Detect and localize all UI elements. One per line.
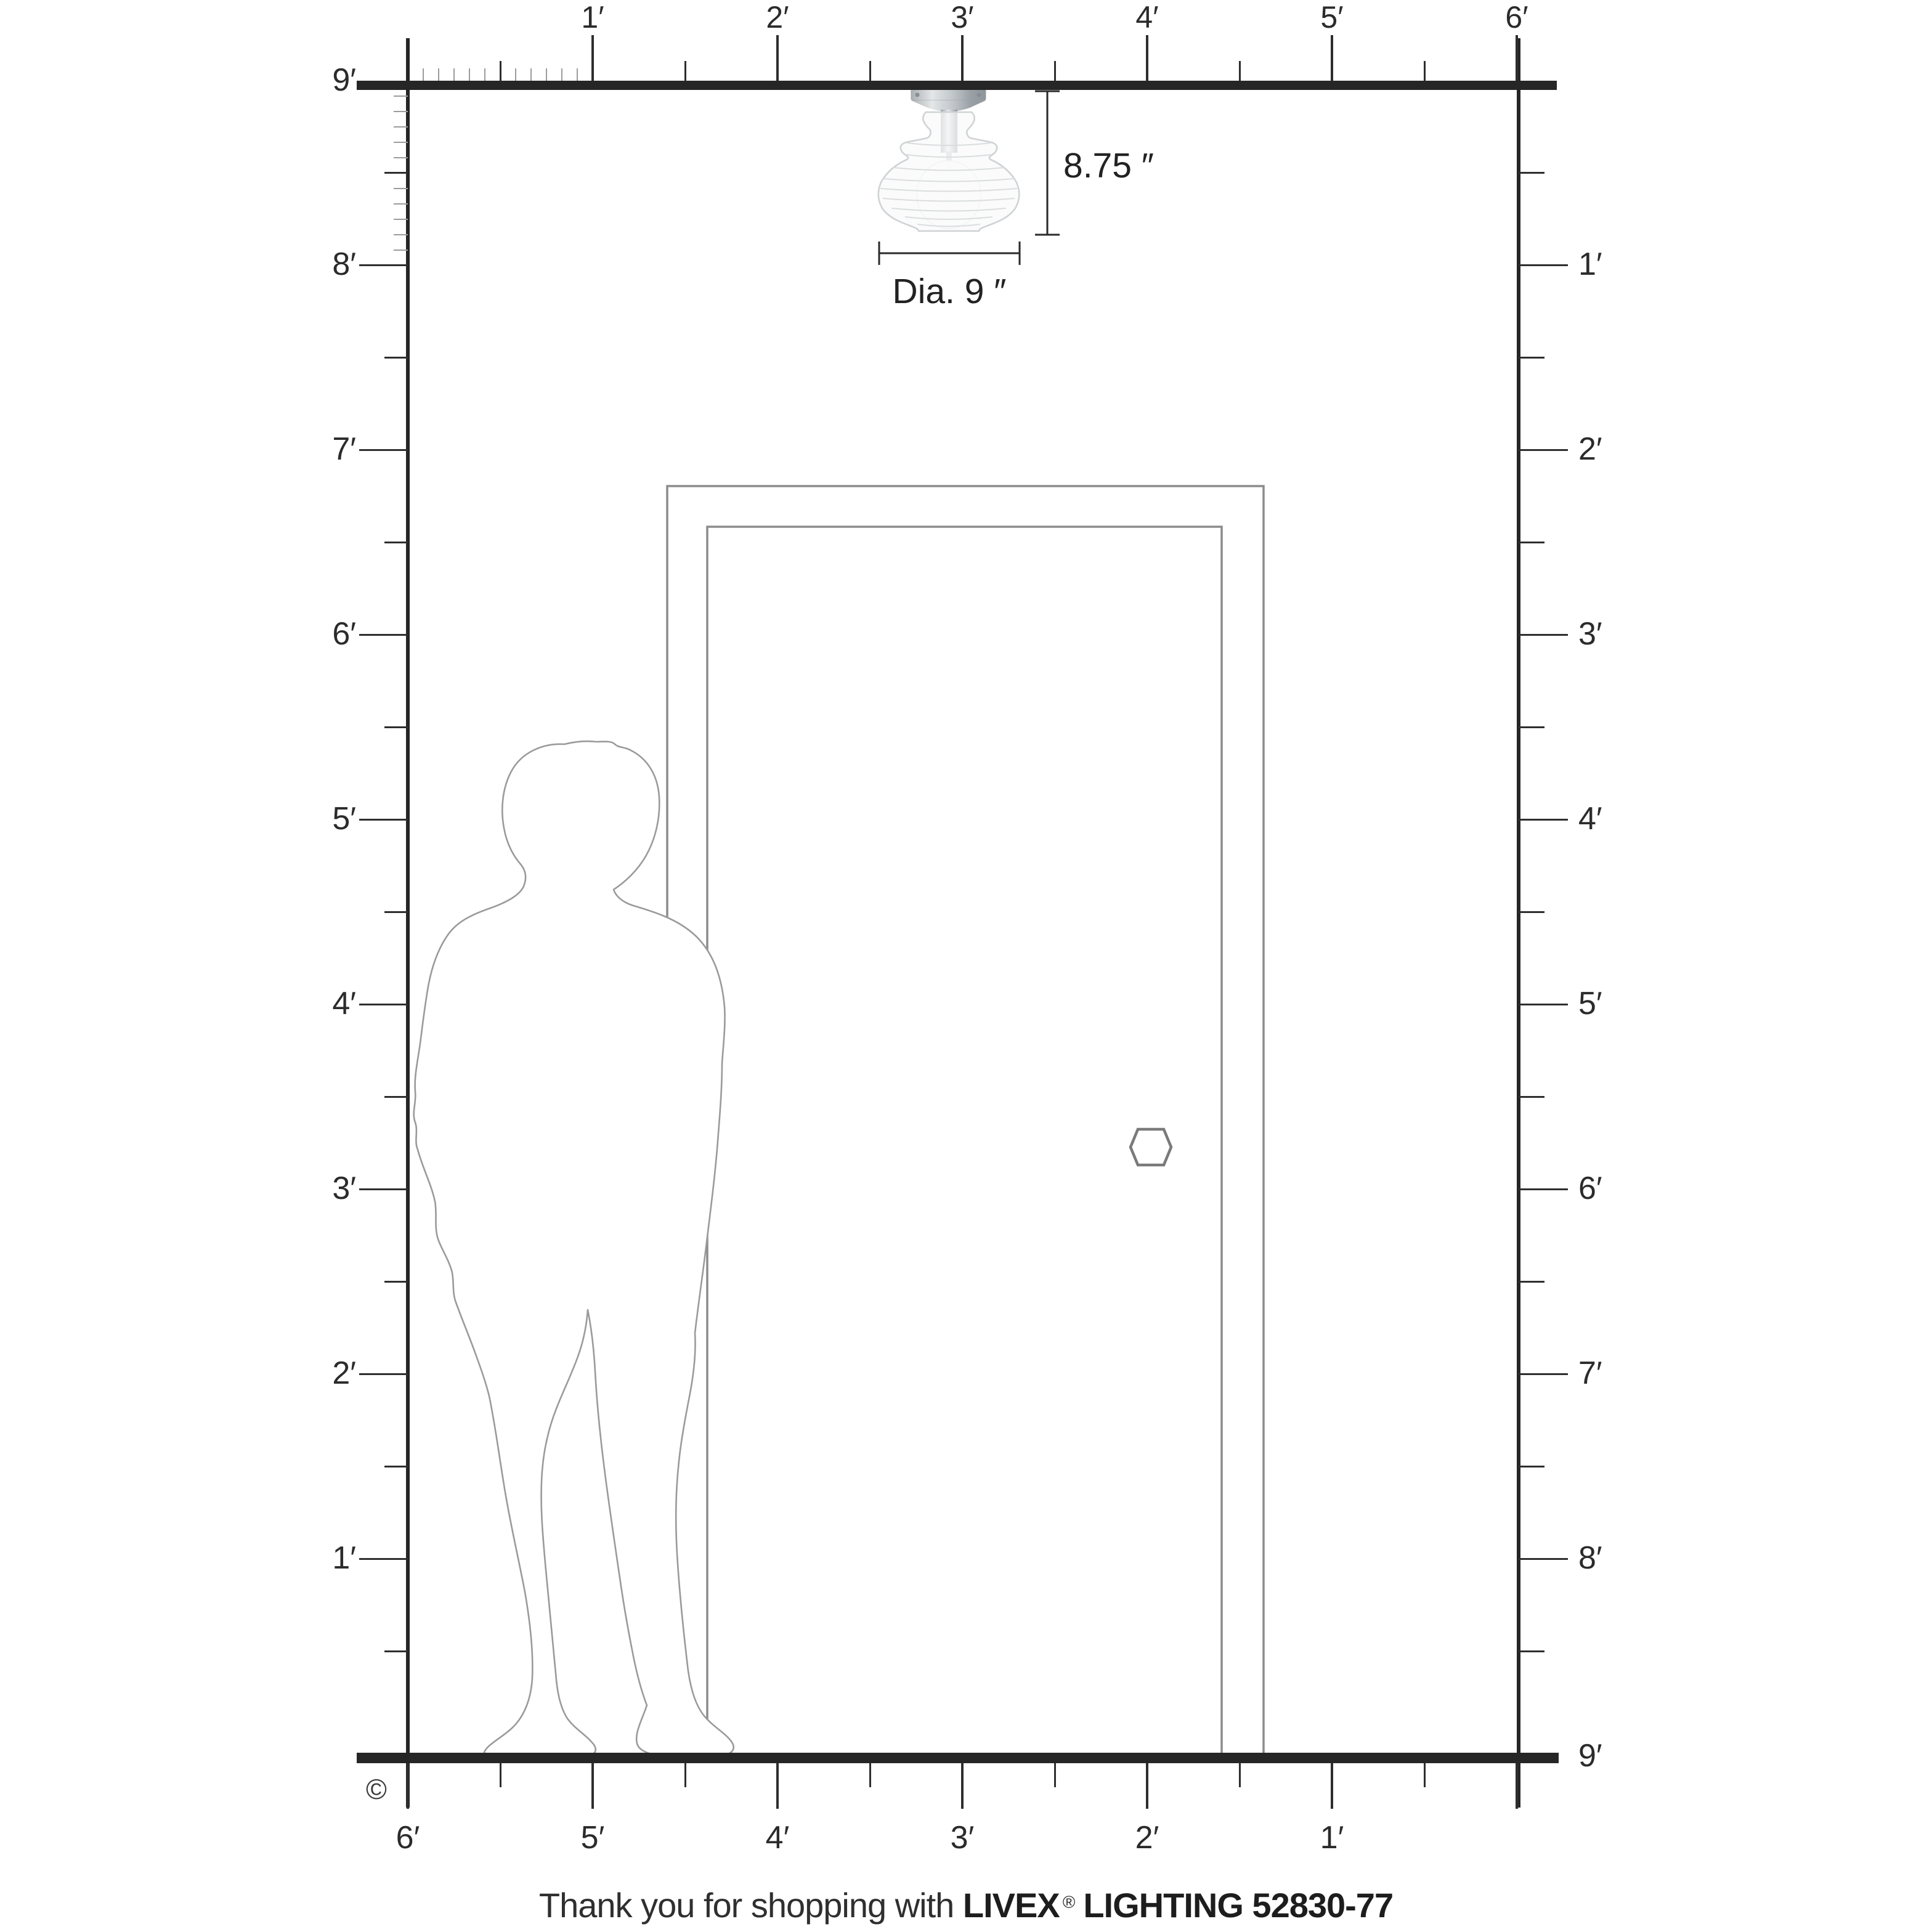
top-foot-tick <box>1331 35 1333 81</box>
left-half-foot-tick <box>384 1650 408 1652</box>
door <box>667 486 1264 1756</box>
right-ruler-label: 6′ <box>1578 1169 1702 1208</box>
top-inch-tick <box>438 68 439 81</box>
registered-trademark-icon: ® <box>1063 1893 1075 1912</box>
canopy-screw <box>977 93 981 97</box>
right-ruler-label: 3′ <box>1578 614 1702 654</box>
right-half-foot-tick <box>1519 1466 1544 1467</box>
left-ruler-label: 9′ <box>251 60 356 100</box>
right-wall-axis <box>1517 38 1520 1808</box>
left-half-foot-tick <box>384 1096 408 1098</box>
bottom-ruler-label: 3′ <box>916 1817 1009 1858</box>
top-foot-tick <box>1516 35 1518 81</box>
left-inch-tick <box>394 157 408 158</box>
bottom-half-foot-tick <box>684 1763 686 1787</box>
left-inch-tick <box>394 95 408 97</box>
right-foot-tick <box>1519 1373 1568 1375</box>
bottom-half-foot-tick <box>1239 1763 1241 1787</box>
footer-text: Thank you for shopping with LIVEX®LIGHTI… <box>0 1885 1932 1925</box>
left-ruler-label: 6′ <box>251 614 356 654</box>
top-inch-tick <box>484 68 485 81</box>
left-half-foot-tick <box>384 1281 408 1283</box>
right-foot-tick <box>1519 264 1568 266</box>
left-ruler-label: 5′ <box>251 799 356 838</box>
right-ruler-label: 8′ <box>1578 1538 1702 1578</box>
right-ruler-label: 4′ <box>1578 799 1702 838</box>
right-half-foot-tick <box>1519 1281 1544 1283</box>
left-ruler-label: 3′ <box>251 1169 356 1208</box>
left-ruler-label: 2′ <box>251 1354 356 1393</box>
left-half-foot-tick <box>384 911 408 913</box>
bottom-foot-tick <box>1331 1763 1333 1809</box>
right-ruler-label: 7′ <box>1578 1354 1702 1393</box>
left-foot-tick <box>359 819 408 821</box>
copyright-mark: © <box>366 1772 387 1806</box>
top-half-foot-tick <box>1239 61 1241 81</box>
left-wall-axis <box>406 38 410 1808</box>
top-foot-tick <box>591 35 594 81</box>
top-ruler-label: 5′ <box>1286 0 1378 34</box>
bottom-ruler-label: 1′ <box>1286 1817 1378 1858</box>
top-ruler-label: 1′ <box>546 0 639 34</box>
brand-name: LIVEX <box>963 1886 1060 1925</box>
left-inch-tick <box>394 250 408 251</box>
top-half-foot-tick <box>500 61 501 81</box>
left-foot-tick <box>359 264 408 266</box>
footer-message: Thank you for shopping with <box>539 1886 954 1925</box>
left-foot-tick <box>359 1558 408 1560</box>
top-inch-tick <box>561 68 562 81</box>
right-half-foot-tick <box>1519 542 1544 543</box>
left-inch-tick <box>394 111 408 112</box>
right-foot-tick <box>1519 819 1568 821</box>
right-ruler-label: 2′ <box>1578 429 1702 469</box>
ceiling-light-fixture <box>879 89 1020 231</box>
left-half-foot-tick <box>384 1466 408 1467</box>
bottom-foot-tick <box>407 1763 409 1809</box>
left-foot-tick <box>359 1004 408 1005</box>
right-foot-tick <box>1519 449 1568 451</box>
bottom-foot-tick <box>961 1763 964 1809</box>
right-ruler-label: 9′ <box>1578 1736 1702 1776</box>
left-inch-tick <box>394 142 408 143</box>
right-half-foot-tick <box>1519 1096 1544 1098</box>
left-ruler-label: 1′ <box>251 1538 356 1578</box>
top-half-foot-tick <box>1424 61 1426 81</box>
top-inch-tick <box>546 68 547 81</box>
left-ruler-label: 4′ <box>251 984 356 1023</box>
left-ruler-label: 7′ <box>251 429 356 469</box>
right-foot-tick <box>1519 634 1568 636</box>
dimension-diagram: 1′2′3′4′5′6′9′8′7′6′5′4′3′2′1′1′2′3′4′5′… <box>0 0 1932 1932</box>
left-half-foot-tick <box>384 542 408 543</box>
top-inch-tick <box>469 68 470 81</box>
canopy-plate <box>911 89 986 100</box>
left-foot-tick <box>359 634 408 636</box>
left-inch-tick <box>394 219 408 220</box>
bottom-ruler-label: 6′ <box>362 1817 454 1858</box>
person-silhouette <box>414 741 734 1759</box>
bottom-foot-tick <box>591 1763 594 1809</box>
right-half-foot-tick <box>1519 1650 1544 1652</box>
floor-bar <box>357 1753 1559 1763</box>
left-ruler-label: 8′ <box>251 245 356 284</box>
left-inch-tick <box>394 126 408 128</box>
top-inch-tick <box>515 68 516 81</box>
left-inch-tick <box>394 203 408 205</box>
left-foot-tick <box>359 1373 408 1375</box>
right-foot-tick <box>1519 1558 1568 1560</box>
bottom-ruler-label: 4′ <box>731 1817 824 1858</box>
left-half-foot-tick <box>384 172 408 174</box>
top-foot-tick <box>961 35 964 81</box>
right-foot-tick <box>1519 1004 1568 1005</box>
ceiling-bar <box>357 81 1557 90</box>
right-half-foot-tick <box>1519 357 1544 359</box>
bottom-half-foot-tick <box>1054 1763 1056 1787</box>
top-foot-tick <box>1146 35 1148 81</box>
bottom-foot-tick <box>1516 1763 1518 1809</box>
top-inch-tick <box>577 68 578 81</box>
right-half-foot-tick <box>1519 911 1544 913</box>
bottom-foot-tick <box>1146 1763 1148 1809</box>
left-inch-tick <box>394 234 408 235</box>
bottom-half-foot-tick <box>869 1763 871 1787</box>
top-half-foot-tick <box>869 61 871 81</box>
glass-shade <box>879 112 1020 231</box>
bottom-foot-tick <box>776 1763 779 1809</box>
top-ruler-label: 2′ <box>731 0 824 34</box>
right-ruler-label: 1′ <box>1578 245 1702 284</box>
left-half-foot-tick <box>384 726 408 728</box>
left-half-foot-tick <box>384 357 408 359</box>
top-half-foot-tick <box>1054 61 1056 81</box>
left-foot-tick <box>359 1188 408 1190</box>
right-foot-tick <box>1519 1188 1568 1190</box>
top-foot-tick <box>776 35 779 81</box>
top-half-foot-tick <box>684 61 686 81</box>
canopy-screw <box>915 93 920 97</box>
right-half-foot-tick <box>1519 172 1544 174</box>
door-knob <box>1130 1129 1171 1165</box>
top-ruler-label: 6′ <box>1471 0 1563 34</box>
fixture-diameter-label: Dia. 9 ″ <box>857 271 1042 312</box>
top-inch-tick <box>453 68 455 81</box>
bottom-ruler-label: 2′ <box>1101 1817 1193 1858</box>
bottom-ruler-label: 5′ <box>546 1817 639 1858</box>
left-inch-tick <box>394 188 408 189</box>
top-inch-tick <box>423 68 424 81</box>
top-ruler-label: 4′ <box>1101 0 1193 34</box>
top-ruler-label: 3′ <box>916 0 1009 34</box>
top-inch-tick <box>530 68 532 81</box>
product-number: LIGHTING 52830-77 <box>1083 1886 1393 1925</box>
right-ruler-label: 5′ <box>1578 984 1702 1023</box>
bottom-half-foot-tick <box>1424 1763 1426 1787</box>
bottom-half-foot-tick <box>500 1763 501 1787</box>
right-half-foot-tick <box>1519 726 1544 728</box>
left-foot-tick <box>359 449 408 451</box>
fixture-height-label: 8.75 ″ <box>1063 145 1154 186</box>
